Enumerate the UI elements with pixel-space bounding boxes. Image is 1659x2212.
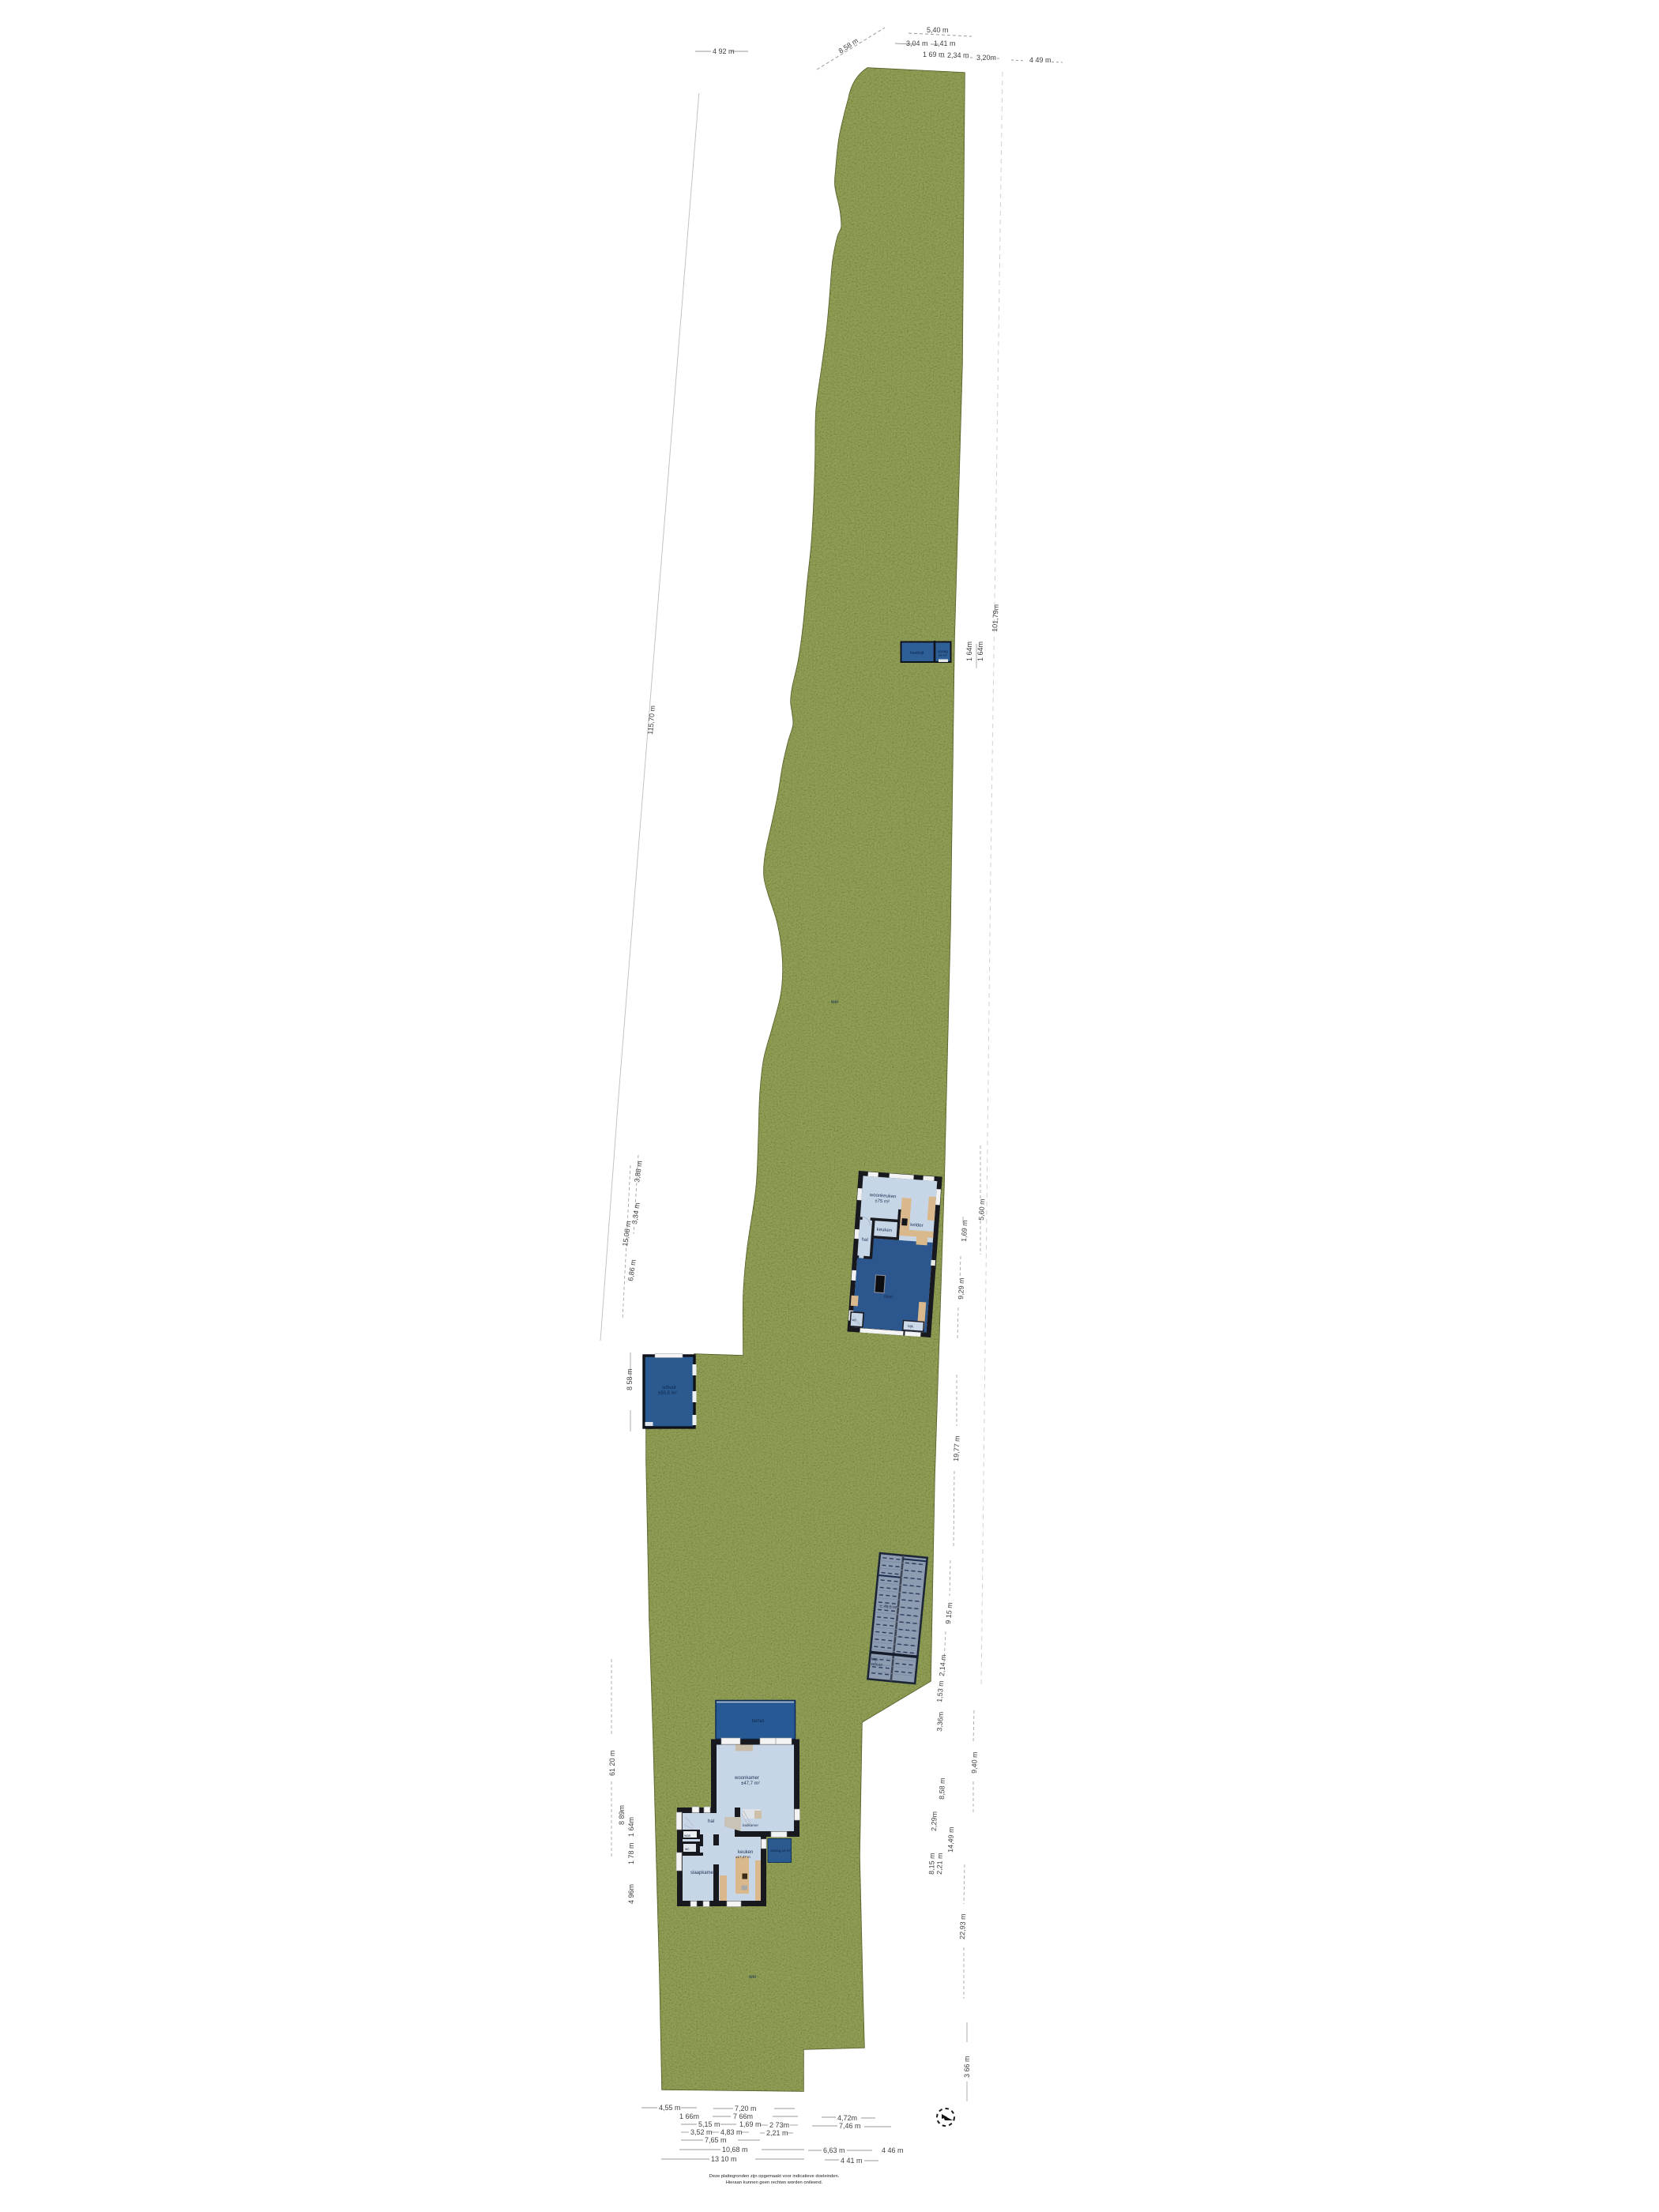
svg-text:1,41 m: 1,41 m — [934, 39, 956, 47]
svg-text:1 64m: 1 64m — [976, 641, 984, 661]
svg-text:wei: wei — [830, 1000, 838, 1005]
svg-text:7,65 m: 7,65 m — [705, 2136, 727, 2144]
svg-text:Deze plattegronden zijn opgema: Deze plattegronden zijn opgemaakt voor i… — [709, 2174, 840, 2179]
svg-text:3,34 m: 3,34 m — [630, 1202, 641, 1225]
svg-text:9 15 m: 9 15 m — [944, 1602, 954, 1624]
svg-text:wei: wei — [748, 1975, 756, 1980]
svg-text:1 64m: 1 64m — [965, 641, 973, 661]
svg-text:woonkamer: woonkamer — [734, 1776, 759, 1781]
svg-text:4 92 m: 4 92 m — [713, 47, 735, 55]
svg-text:1,69 m: 1,69 m — [739, 2120, 762, 2128]
svg-text:19,77 m: 19,77 m — [952, 1435, 961, 1461]
svg-text:hal: hal — [708, 1819, 714, 1824]
svg-text:badkamer: badkamer — [743, 1823, 759, 1827]
svg-text:1,53 m: 1,53 m — [935, 1680, 945, 1702]
svg-text:4 49 m: 4 49 m — [1029, 56, 1051, 64]
svg-text:1 66m: 1 66m — [679, 2112, 699, 2120]
svg-text:10,68 m: 10,68 m — [722, 2146, 748, 2154]
svg-text:4,55 m: 4,55 m — [659, 2104, 681, 2112]
svg-text:7 66m: 7 66m — [733, 2112, 753, 2120]
svg-text:2 73m: 2 73m — [769, 2121, 789, 2129]
svg-text:3,04 m: 3,04 m — [906, 39, 928, 47]
svg-text:terras: terras — [752, 1719, 764, 1724]
svg-text:3,20m: 3,20m — [976, 54, 996, 62]
svg-text:±50,5 m²: ±50,5 m² — [658, 1391, 677, 1396]
svg-text:2,14 m: 2,14 m — [938, 1654, 947, 1676]
svg-text:4 46 m: 4 46 m — [882, 2146, 904, 2154]
svg-text:3,88 m: 3,88 m — [633, 1161, 644, 1183]
svg-text:2,21 m: 2,21 m — [766, 2129, 788, 2137]
svg-text:opslag ±9 m²: opslag ±9 m² — [770, 1849, 791, 1853]
svg-text:7,20 m: 7,20 m — [735, 2105, 757, 2112]
svg-text:4 41 m: 4 41 m — [841, 2157, 863, 2165]
svg-text:kelder: kelder — [910, 1223, 924, 1228]
svg-text:5,40 m: 5,40 m — [927, 26, 949, 34]
svg-text:8 89m: 8 89m — [618, 1805, 626, 1825]
svg-text:115,70 m: 115,70 m — [646, 705, 656, 735]
svg-text:8 58 m: 8 58 m — [626, 1368, 634, 1390]
svg-text:13 10 m: 13 10 m — [711, 2155, 737, 2163]
svg-text:3,36m: 3,36m — [935, 1711, 945, 1732]
svg-text:9,29 m: 9,29 m — [957, 1277, 965, 1300]
svg-text:±9 m²: ±9 m² — [939, 653, 948, 657]
svg-text:6,86 m: 6,86 m — [626, 1259, 638, 1282]
svg-text:bijk.: bijk. — [908, 1324, 914, 1329]
svg-text:22,93 m: 22,93 m — [958, 1913, 967, 1939]
svg-text:deel: deel — [883, 1295, 893, 1300]
svg-text:2,29m: 2,29m — [930, 1811, 939, 1831]
svg-text:was: was — [684, 1834, 691, 1838]
svg-text:3,52 m: 3,52 m — [690, 2128, 713, 2136]
svg-text:1 64m: 1 64m — [627, 1817, 635, 1837]
svg-text:hooimijt: hooimijt — [910, 651, 924, 656]
svg-text:8,15 m: 8,15 m — [927, 1853, 936, 1875]
svg-text:8,58 m: 8,58 m — [938, 1777, 946, 1800]
svg-text:1 78 m: 1 78 m — [627, 1842, 635, 1864]
svg-text:4 96m: 4 96m — [627, 1884, 635, 1904]
svg-text:61 20 m: 61 20 m — [608, 1750, 616, 1776]
svg-text:6,63 m: 6,63 m — [823, 2146, 845, 2154]
svg-text:±47,7 m²: ±47,7 m² — [741, 1781, 760, 1786]
svg-text:8.58 m: 8.58 m — [837, 36, 860, 55]
svg-text:5,15 m: 5,15 m — [698, 2120, 720, 2128]
svg-text:2,21 m: 2,21 m — [935, 1853, 944, 1875]
svg-text:101,79m: 101,79m — [991, 604, 1000, 633]
svg-text:4,83 m: 4,83 m — [720, 2128, 743, 2136]
svg-text:5,60 m: 5,60 m — [977, 1198, 986, 1221]
svg-text:14,49 m: 14,49 m — [946, 1826, 955, 1853]
svg-text:slaapkamer: slaapkamer — [690, 1871, 715, 1875]
svg-text:4,72m: 4,72m — [837, 2114, 857, 2122]
svg-text:wc: wc — [685, 1847, 690, 1851]
svg-text:3 66 m: 3 66 m — [963, 2056, 971, 2078]
svg-text:1,69 m: 1,69 m — [960, 1220, 969, 1242]
svg-text:±17,37 m: ±17,37 m — [735, 1855, 750, 1859]
svg-text:hal: hal — [862, 1238, 868, 1243]
svg-text:schuur: schuur — [662, 1386, 676, 1390]
svg-text:Hieraan kunnen geen rechten wo: Hieraan kunnen geen rechten worden ontle… — [726, 2180, 823, 2185]
svg-text:7,46 m: 7,46 m — [839, 2122, 861, 2130]
svg-text:9,40 m: 9,40 m — [970, 1751, 979, 1774]
